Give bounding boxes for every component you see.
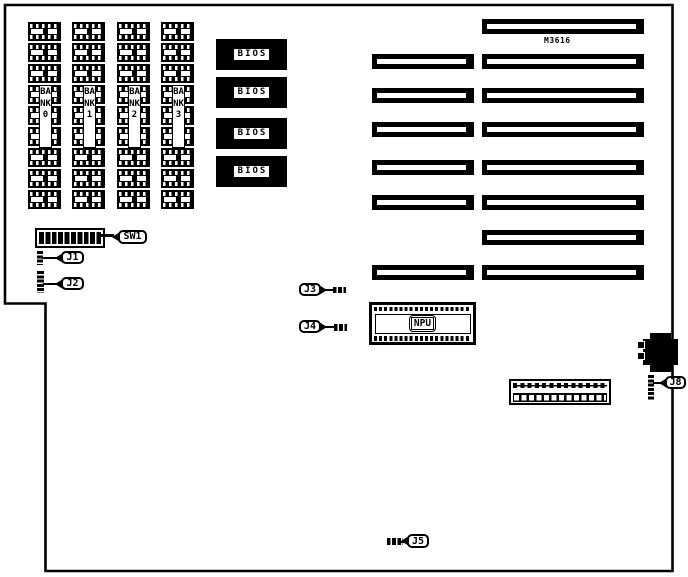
expansion-slot bbox=[372, 265, 474, 280]
bios-chip-2: BIOS bbox=[216, 118, 287, 149]
bios-chip-3: BIOS bbox=[216, 156, 287, 187]
memory-chip bbox=[161, 22, 194, 41]
expansion-slot bbox=[482, 19, 644, 34]
callout-j3: J3 bbox=[299, 283, 321, 296]
callout-j4: J4 bbox=[299, 320, 321, 333]
memory-chip bbox=[117, 64, 150, 83]
expansion-slot bbox=[372, 122, 474, 137]
npu-socket: NPU bbox=[369, 302, 476, 345]
bank1-label: BANK1 bbox=[83, 85, 96, 148]
memory-chip bbox=[28, 64, 61, 83]
dip-switch-sw1 bbox=[35, 228, 105, 248]
memory-chip bbox=[72, 64, 105, 83]
expansion-slot bbox=[482, 54, 644, 69]
memory-chip bbox=[117, 190, 150, 209]
pin-header-connector bbox=[509, 379, 611, 405]
memory-chip bbox=[72, 22, 105, 41]
memory-chip bbox=[72, 148, 105, 167]
callout-j8: J8 bbox=[665, 376, 686, 389]
callout-j2: J2 bbox=[61, 277, 84, 290]
npu-socket-interior: NPU bbox=[375, 314, 471, 334]
callout-j1: J1 bbox=[61, 251, 84, 264]
bank0-label: BANK0 bbox=[39, 85, 52, 148]
expansion-slot bbox=[482, 160, 644, 175]
bios-chip-0: BIOS bbox=[216, 39, 287, 70]
callout-sw1: SW1 bbox=[118, 230, 147, 244]
expansion-slot bbox=[482, 230, 644, 245]
expansion-slot bbox=[372, 54, 474, 69]
model-label: M3616 bbox=[544, 36, 571, 45]
expansion-slot bbox=[482, 88, 644, 103]
bios-chip-label: BIOS bbox=[234, 166, 270, 177]
memory-chip bbox=[28, 148, 61, 167]
memory-chip bbox=[28, 190, 61, 209]
memory-chip bbox=[161, 43, 194, 62]
memory-chip bbox=[161, 148, 194, 167]
memory-chip bbox=[72, 169, 105, 188]
npu-label: NPU bbox=[411, 317, 434, 330]
memory-chip bbox=[72, 190, 105, 209]
keyboard-din-connector-body bbox=[643, 339, 678, 365]
memory-chip bbox=[161, 64, 194, 83]
memory-chip bbox=[161, 169, 194, 188]
memory-chip bbox=[117, 148, 150, 167]
bios-chip-label: BIOS bbox=[234, 49, 270, 60]
pin-header-top-row bbox=[513, 382, 607, 390]
memory-chip bbox=[161, 190, 194, 209]
callout-j5: J5 bbox=[407, 534, 429, 548]
jumper-j4 bbox=[334, 324, 347, 331]
bios-chip-label: BIOS bbox=[234, 87, 270, 98]
memory-chip bbox=[28, 169, 61, 188]
memory-chip bbox=[117, 43, 150, 62]
bios-chip-label: BIOS bbox=[234, 128, 270, 139]
jumper-j3 bbox=[333, 287, 346, 293]
expansion-slot bbox=[372, 160, 474, 175]
npu-label-frame: NPU bbox=[409, 315, 436, 332]
keyboard-din-connector-base bbox=[650, 363, 673, 372]
memory-chip bbox=[28, 43, 61, 62]
keyboard-din-tab bbox=[637, 352, 645, 360]
expansion-slot bbox=[482, 265, 644, 280]
bank2-label: BANK2 bbox=[128, 85, 141, 148]
expansion-slot bbox=[372, 195, 474, 210]
memory-chip bbox=[117, 169, 150, 188]
jumper-j8 bbox=[648, 375, 654, 400]
memory-chip bbox=[28, 22, 61, 41]
memory-chip bbox=[72, 43, 105, 62]
expansion-slot bbox=[482, 122, 644, 137]
bank3-label: BANK3 bbox=[172, 85, 185, 148]
expansion-slot bbox=[482, 195, 644, 210]
bios-chip-1: BIOS bbox=[216, 77, 287, 108]
motherboard-diagram: BANK0 BANK1 BANK2 BANK3 BIOS BIOS BIOS B… bbox=[0, 0, 688, 577]
expansion-slot bbox=[372, 88, 474, 103]
keyboard-din-tab bbox=[637, 341, 645, 349]
pin-header-bottom-row bbox=[513, 393, 607, 402]
memory-chip bbox=[117, 22, 150, 41]
